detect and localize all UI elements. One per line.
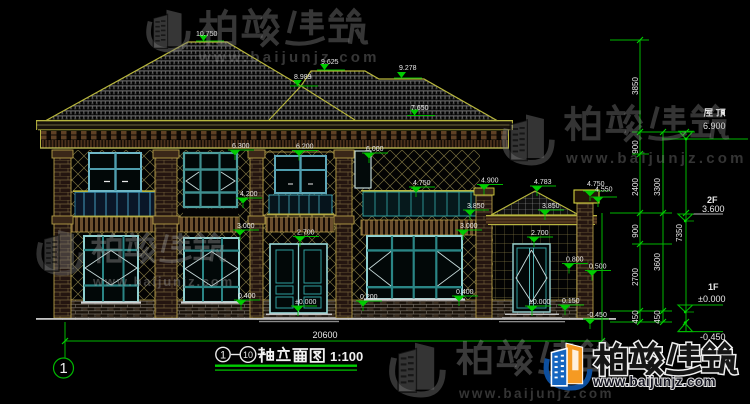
- svg-text:8.989: 8.989: [294, 74, 312, 81]
- svg-text:0.400: 0.400: [456, 289, 474, 296]
- svg-text:www.baijunjz.com: www.baijunjz.com: [565, 150, 747, 167]
- svg-text:6.000: 6.000: [366, 146, 384, 153]
- svg-text:1:100: 1:100: [330, 349, 363, 364]
- svg-text:www.baijunjz.com: www.baijunjz.com: [458, 386, 614, 401]
- svg-text:3300: 3300: [653, 178, 662, 196]
- svg-text:10: 10: [243, 350, 253, 360]
- svg-text:0.400: 0.400: [238, 293, 256, 300]
- svg-text:900: 900: [631, 224, 640, 238]
- svg-text:www.baijunjz.com: www.baijunjz.com: [92, 274, 234, 289]
- svg-text:1: 1: [220, 350, 226, 362]
- svg-text:7.650: 7.650: [411, 105, 429, 112]
- svg-text:±0.000: ±0.000: [529, 299, 550, 306]
- svg-text:450: 450: [653, 310, 662, 324]
- svg-text:4.900: 4.900: [481, 178, 499, 185]
- svg-text:4.750: 4.750: [413, 180, 431, 187]
- svg-text:6.300: 6.300: [232, 143, 250, 150]
- svg-text:3.850: 3.850: [542, 203, 560, 210]
- svg-text:3.850: 3.850: [467, 203, 485, 210]
- svg-text:2.700: 2.700: [531, 230, 549, 237]
- svg-text:0.500: 0.500: [589, 264, 607, 271]
- svg-text:0.800: 0.800: [566, 257, 584, 264]
- svg-text:3850: 3850: [631, 77, 640, 95]
- svg-text:0.150: 0.150: [562, 298, 580, 305]
- svg-text:6.200: 6.200: [296, 144, 314, 151]
- svg-text:7350: 7350: [675, 224, 684, 242]
- svg-text:www.baijunjz.com: www.baijunjz.com: [198, 49, 380, 66]
- svg-text:www.baijunjz.com: www.baijunjz.com: [592, 374, 716, 389]
- svg-text:1F: 1F: [708, 282, 719, 292]
- svg-text:3600: 3600: [653, 253, 662, 271]
- svg-text:1: 1: [59, 360, 67, 377]
- svg-text:20600: 20600: [312, 330, 337, 340]
- svg-text:3.000: 3.000: [460, 223, 478, 230]
- svg-text:9.278: 9.278: [399, 65, 417, 72]
- svg-text:0.200: 0.200: [360, 294, 378, 301]
- svg-text:±0.000: ±0.000: [698, 294, 725, 304]
- svg-text:4.200: 4.200: [240, 191, 258, 198]
- svg-text:-0.450: -0.450: [587, 312, 607, 319]
- svg-text:2400: 2400: [631, 178, 640, 196]
- svg-text:2.700: 2.700: [297, 230, 315, 237]
- svg-text:4.783: 4.783: [534, 179, 552, 186]
- svg-text:±0.000: ±0.000: [295, 299, 316, 306]
- svg-text:-0.450: -0.450: [700, 332, 726, 342]
- svg-text:2700: 2700: [631, 268, 640, 286]
- svg-text:3.000: 3.000: [237, 223, 255, 230]
- svg-text:3.600: 3.600: [702, 204, 725, 214]
- svg-text:450: 450: [631, 310, 640, 324]
- svg-text:4.550: 4.550: [595, 187, 613, 194]
